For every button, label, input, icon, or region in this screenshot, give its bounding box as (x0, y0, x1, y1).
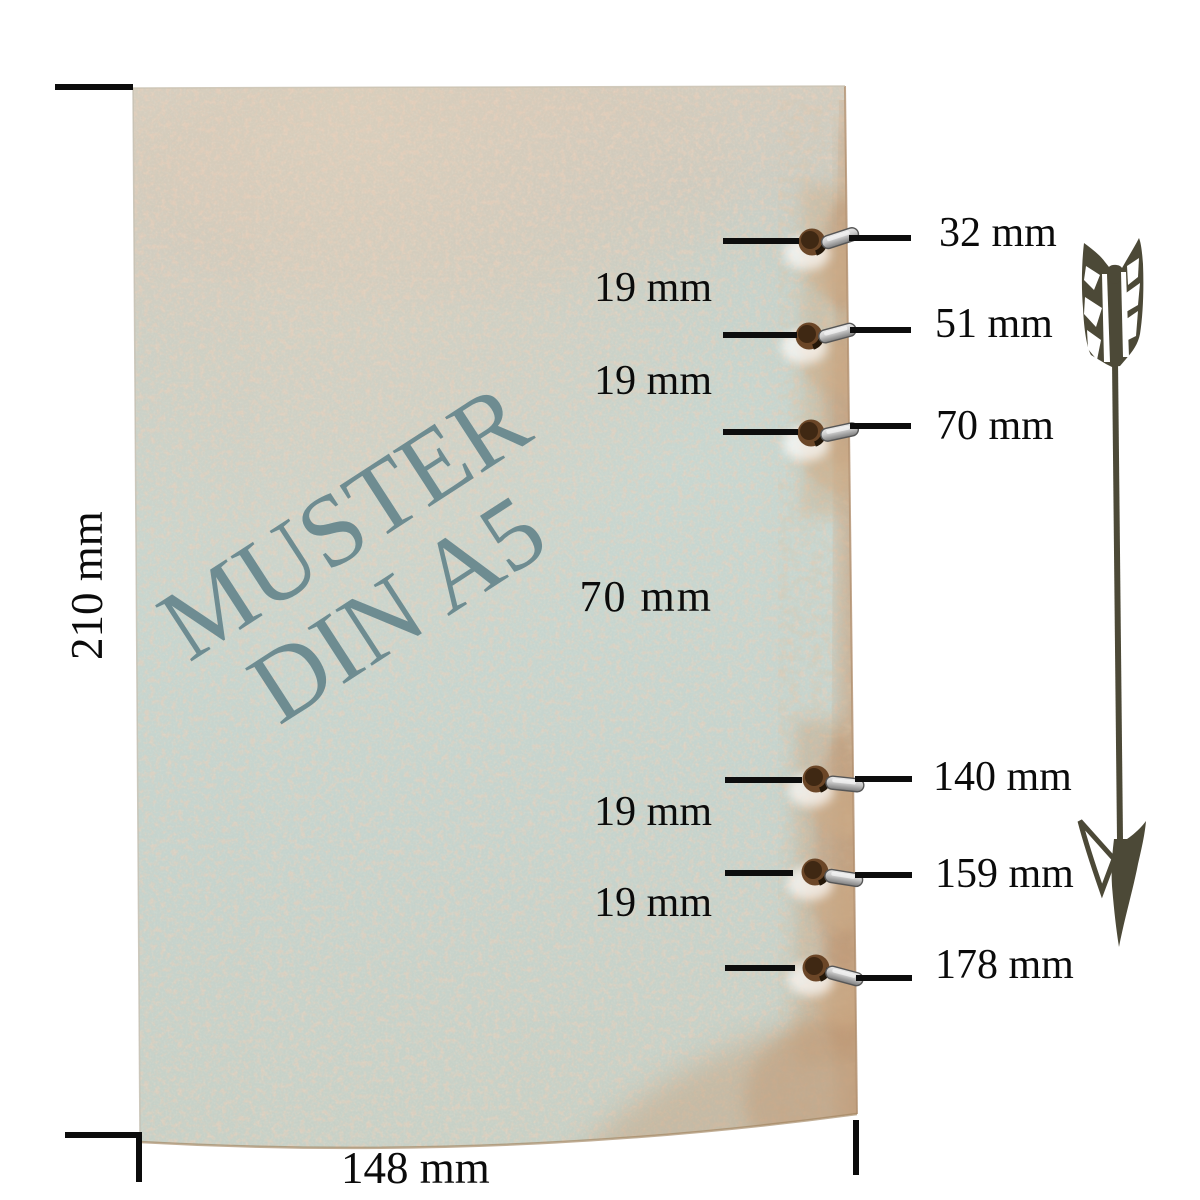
svg-text:19 mm: 19 mm (594, 880, 712, 926)
svg-text:70 mm: 70 mm (580, 572, 713, 621)
svg-text:140 mm: 140 mm (933, 754, 1072, 800)
svg-text:51 mm: 51 mm (935, 301, 1053, 347)
svg-text:148 mm: 148 mm (341, 1143, 490, 1193)
svg-text:159 mm: 159 mm (935, 851, 1074, 897)
svg-text:178 mm: 178 mm (935, 942, 1074, 988)
svg-text:210 mm: 210 mm (62, 511, 112, 660)
svg-text:19 mm: 19 mm (594, 265, 712, 311)
svg-text:32 mm: 32 mm (939, 210, 1057, 256)
svg-text:19 mm: 19 mm (594, 358, 712, 404)
svg-text:19 mm: 19 mm (594, 789, 712, 835)
svg-text:70 mm: 70 mm (936, 403, 1054, 449)
